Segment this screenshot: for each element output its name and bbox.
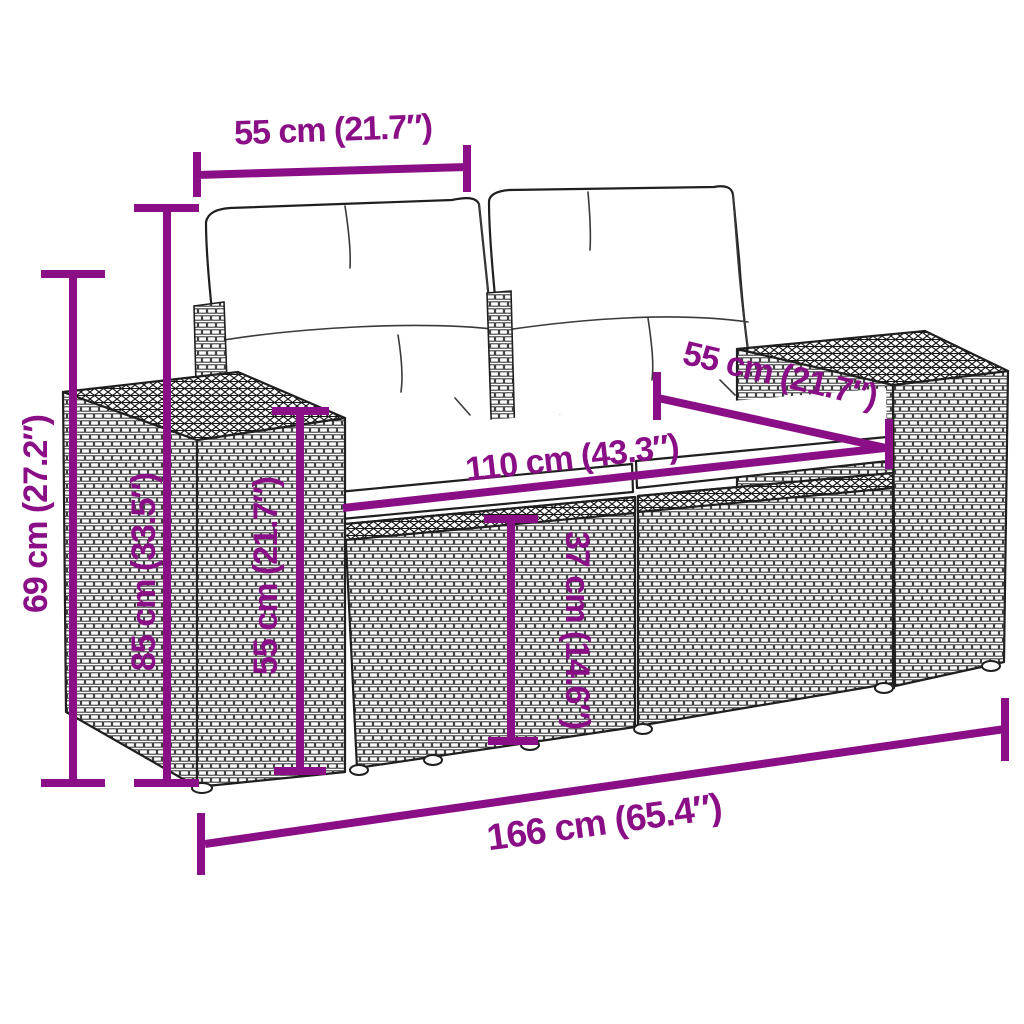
dim-label-backrest-height: 69 cm (27.2″) bbox=[17, 415, 55, 613]
dim-label-cushion-width: 55 cm (21.7″) bbox=[233, 108, 432, 153]
dimension-cushion-width: 55 cm (21.7″) bbox=[197, 108, 467, 197]
dim-label-seat-height: 37 cm (14.6″) bbox=[558, 531, 596, 729]
dimension-diagram: 55 cm (21.7″) 69 cm (27.2″) 85 cm (33.5″… bbox=[0, 0, 1024, 1024]
sofa-dimension-drawing: 55 cm (21.7″) 69 cm (27.2″) 85 cm (33.5″… bbox=[0, 0, 1024, 1024]
dim-label-armrest-height: 55 cm (21.7″) bbox=[247, 477, 285, 675]
dim-label-total-height: 85 cm (33.5″) bbox=[125, 473, 163, 671]
seat-base bbox=[345, 473, 893, 768]
back-frame-strip-left bbox=[194, 302, 227, 385]
